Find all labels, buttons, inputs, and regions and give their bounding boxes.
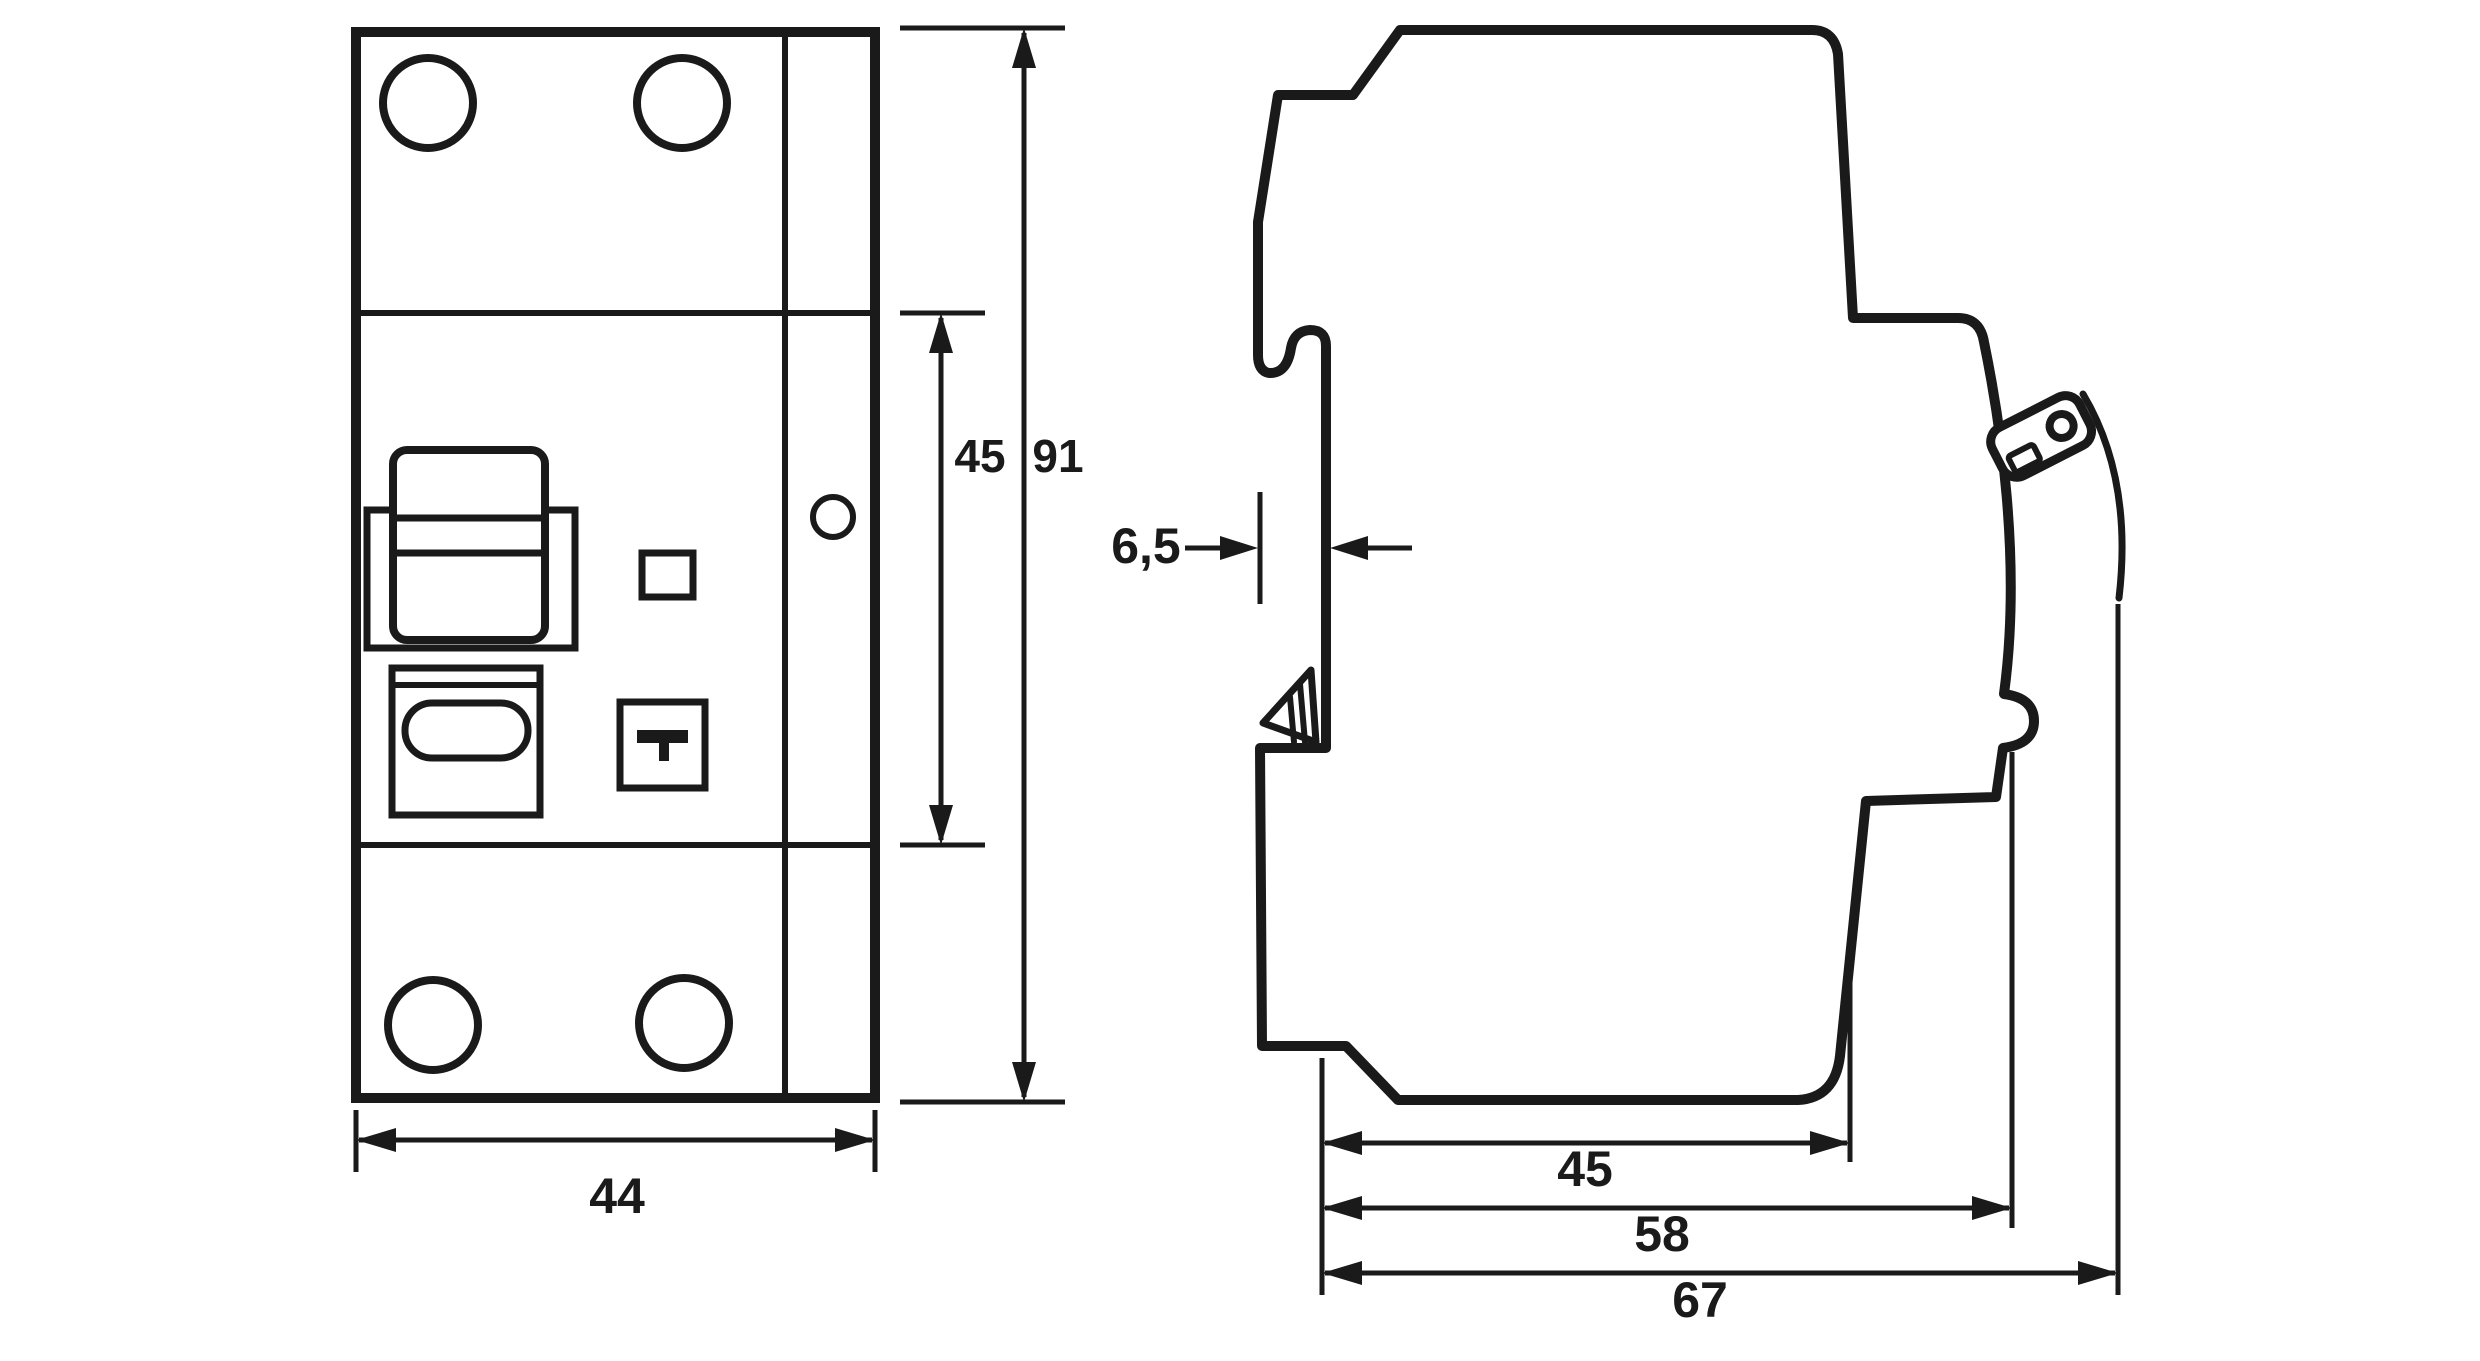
toggle-lever (393, 450, 545, 640)
arrow-58-left (1322, 1196, 1362, 1220)
arrow-67-left (1322, 1261, 1362, 1285)
arrow-91-down (1012, 1062, 1036, 1102)
label-total-height-91: 91 (1032, 430, 1083, 482)
claw-hatch-2 (1290, 697, 1294, 742)
arrow-45d-right (1810, 1131, 1850, 1155)
side-view (1258, 30, 2122, 1100)
toggle-lever-side (1985, 390, 2097, 483)
label-module-height-45: 45 (954, 430, 1005, 482)
arrow-45-down (929, 805, 953, 845)
lever-knob (1985, 390, 2097, 483)
label-depth-58: 58 (1634, 1206, 1690, 1262)
arrow-44-right (835, 1128, 875, 1152)
din-rail-claw (1263, 670, 1316, 742)
label-rail-depth-6-5: 6,5 (1111, 518, 1181, 574)
arrow-91-up (1012, 28, 1036, 68)
lever-ring (2045, 410, 2077, 442)
arrow-45d-left (1322, 1131, 1362, 1155)
label-depth-45: 45 (1557, 1141, 1613, 1197)
label-depth-67: 67 (1672, 1272, 1728, 1328)
arrow-58-right (1972, 1196, 2012, 1220)
arrow-45-up (929, 313, 953, 353)
technical-drawing-canvas: 44 45 91 6,5 45 58 67 (0, 0, 2480, 1361)
arrow-44-left (356, 1128, 396, 1152)
label-width-44: 44 (589, 1168, 645, 1224)
dimensional-drawing: 44 45 91 6,5 45 58 67 (0, 0, 2480, 1361)
arrow-6-5-left (1220, 536, 1258, 560)
front-view (356, 32, 875, 1098)
arrow-67-right (2078, 1261, 2118, 1285)
side-body-outline (1258, 30, 2034, 1100)
